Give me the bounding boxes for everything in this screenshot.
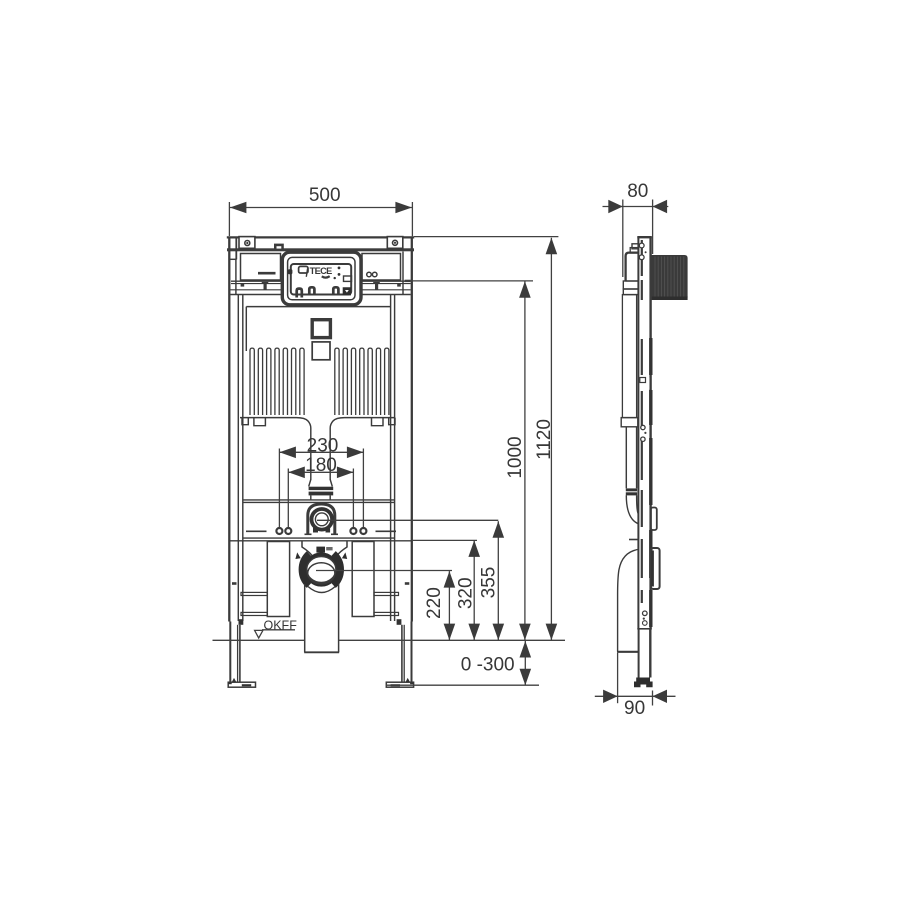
svg-text:90: 90 — [624, 698, 645, 719]
svg-text:OKFF: OKFF — [264, 618, 298, 632]
svg-text:320: 320 — [455, 577, 476, 609]
svg-text:220: 220 — [424, 587, 445, 619]
svg-text:180: 180 — [305, 455, 337, 476]
svg-text:355: 355 — [478, 567, 499, 599]
svg-text:500: 500 — [309, 185, 341, 206]
svg-text:1120: 1120 — [534, 419, 555, 460]
svg-text:80: 80 — [627, 181, 648, 202]
svg-text:230: 230 — [307, 436, 339, 457]
svg-text:TECE: TECE — [310, 266, 333, 276]
svg-text:0 -300: 0 -300 — [461, 654, 515, 675]
svg-text:1000: 1000 — [505, 436, 526, 478]
